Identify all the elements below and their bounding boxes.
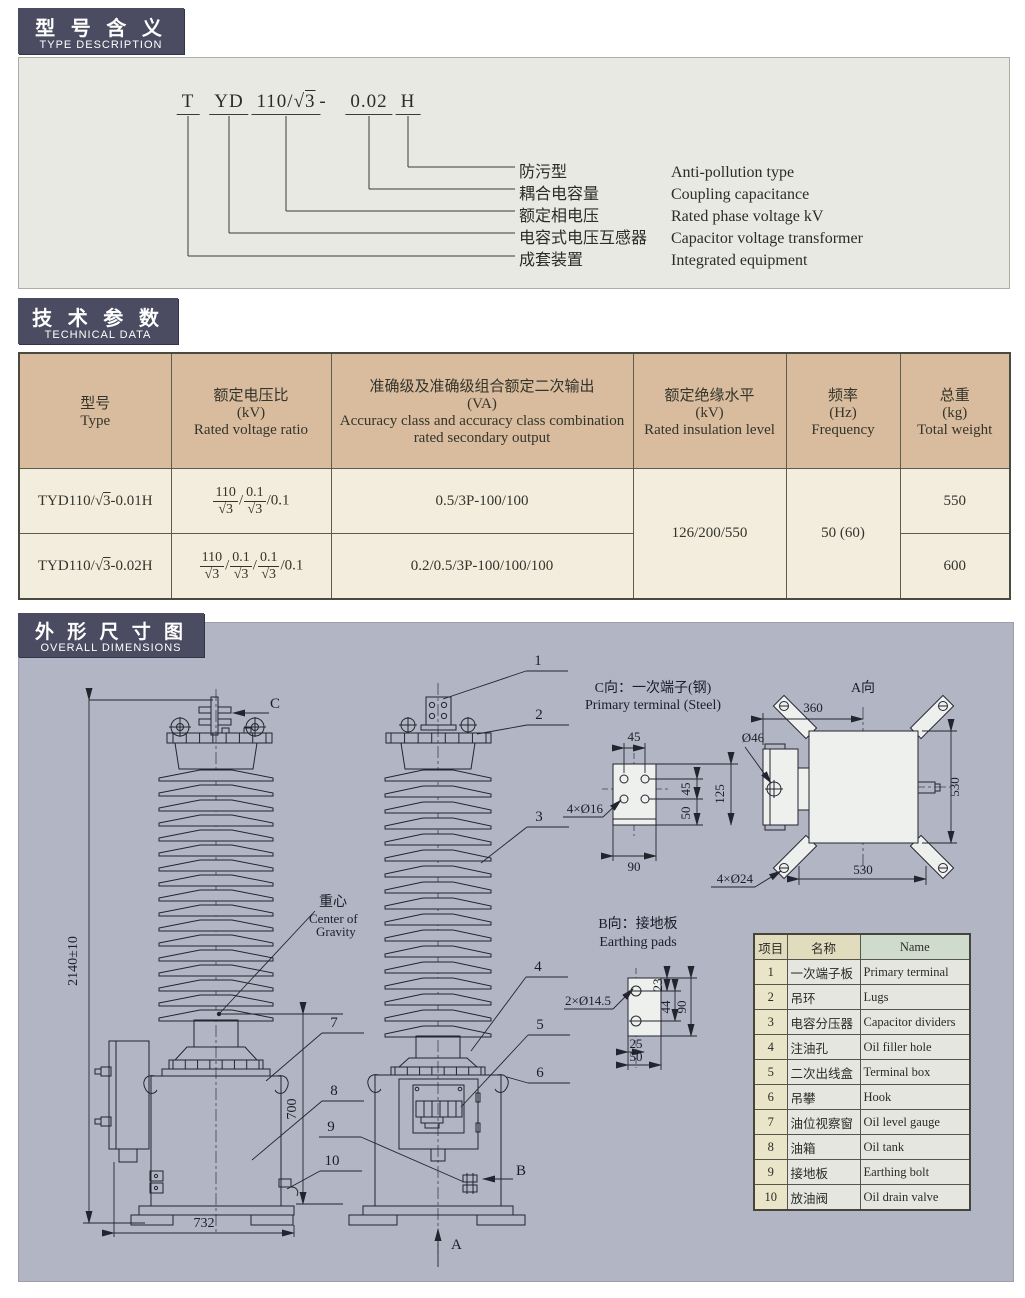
section-title-en: TYPE DESCRIPTION [18, 39, 184, 51]
header-total-weight: 总重 (kg) Total weight [900, 353, 1010, 469]
table-row: TYD110/√3-0.01H 110√3/0.1√3/0.1 0.5/3P-1… [19, 469, 1010, 534]
cell-type: TYD110/√3-0.01H [19, 469, 171, 534]
part-number: 3 [754, 1010, 787, 1035]
cell-insulation: 126/200/550 [633, 469, 786, 600]
page: { "sections": { "type_desc": {"title_zh"… [0, 0, 1025, 1298]
meaning-zh: 成套装置 [519, 246, 671, 270]
part-name-en: Terminal box [860, 1060, 970, 1085]
center-of-gravity-label-zh: 重心 [319, 894, 347, 910]
part-name-zh: 电容分压器 [787, 1010, 860, 1035]
dim-b-23: 23 [650, 979, 665, 992]
parts-row: 9接地板Earthing bolt [754, 1160, 970, 1185]
part-number: 7 [754, 1110, 787, 1135]
b-view-title-en: Earthing pads [599, 935, 676, 950]
dim-b-90: 90 [674, 1001, 689, 1014]
dim-c-45: 45 [628, 729, 641, 744]
part-name-zh: 一次端子板 [787, 960, 860, 985]
dim-c-v50: 50 [678, 807, 693, 820]
view-arrow-a: A [451, 1237, 462, 1253]
part-name-zh: 油位视察窗 [787, 1110, 860, 1135]
dim-a-boss: Ø46 [742, 730, 765, 745]
voltage-fraction: 110√3 [213, 485, 237, 517]
header-type: 型号 Type [19, 353, 171, 469]
b-view-earthing-pads-detail: B向：接地板 Earthing pads 2×Ø14.5 23 44 90 25… [564, 915, 697, 1070]
callout-10: 10 [325, 1153, 340, 1169]
cell-weight: 550 [900, 469, 1010, 534]
parts-row: 8油箱Oil tank [754, 1135, 970, 1160]
technical-data-table: 型号 Type 额定电压比 (kV) Rated voltage ratio 准… [18, 352, 1011, 600]
porcelain-insulator-stack [159, 770, 273, 1021]
meaning-zh: 额定相电压 [519, 202, 671, 226]
part-number: 8 [754, 1135, 787, 1160]
parts-header-no: 项目 [754, 934, 787, 960]
dim-a-360: 360 [803, 700, 823, 715]
section-header-type-description: 型 号 含 义 TYPE DESCRIPTION [18, 8, 184, 54]
part-number: 1 [754, 960, 787, 985]
callout-3: 3 [535, 809, 543, 825]
type-code-token: YD [209, 91, 248, 115]
header-insulation-level: 额定绝缘水平 (kV) Rated insulation level [633, 353, 786, 469]
part-name-zh: 吊攀 [787, 1085, 860, 1110]
parts-list-table: 项目 名称 Name 1一次端子板Primary terminal2吊环Lugs… [753, 933, 971, 1211]
type-code-meaning-row: 防污型Anti-pollution type [519, 158, 794, 182]
part-number: 4 [754, 1035, 787, 1060]
part-name-zh: 油箱 [787, 1135, 860, 1160]
parts-row: 7油位视察窗Oil level gauge [754, 1110, 970, 1135]
part-name-zh: 二次出线盒 [787, 1060, 860, 1085]
section-title-zh: 外 形 尺 寸 图 [18, 617, 204, 644]
parts-row: 2吊环Lugs [754, 985, 970, 1010]
type-code-token: H [396, 91, 421, 115]
part-number: 5 [754, 1060, 787, 1085]
primary-terminal [426, 697, 451, 725]
type-code-token: T [177, 91, 200, 115]
dim-b-50: 50 [630, 1049, 643, 1064]
dim-overall-height: 2140±10 [66, 936, 81, 986]
dim-c-90: 90 [628, 859, 641, 874]
cell-type: TYD110/√3-0.02H [19, 534, 171, 600]
part-number: 2 [754, 985, 787, 1010]
type-code-token: - [314, 91, 331, 114]
view-arrow-b: B [516, 1163, 526, 1179]
view-arrow-c: C [270, 696, 280, 712]
terminal-box-door [399, 1079, 480, 1149]
dim-c-v45: 45 [678, 783, 693, 796]
dim-base-width: 732 [194, 1216, 215, 1231]
callout-2: 2 [535, 707, 543, 723]
part-name-en: Oil filler hole [860, 1035, 970, 1060]
section-header-overall-dimensions: 外 形 尺 寸 图 OVERALL DIMENSIONS [18, 613, 204, 657]
dim-c-v125: 125 [712, 784, 727, 804]
cell-frequency: 50 (60) [786, 469, 900, 600]
parts-row: 6吊攀Hook [754, 1085, 970, 1110]
part-name-en: Oil level gauge [860, 1110, 970, 1135]
cell-ratio: 110√3/0.1√3/0.1 [171, 469, 331, 534]
dim-b-holes: 2×Ø14.5 [565, 993, 611, 1008]
part-name-en: Hook [860, 1085, 970, 1110]
parts-header-row: 项目 名称 Name [754, 934, 970, 960]
dim-a-holes: 4×Ø24 [717, 871, 754, 886]
callout-6: 6 [536, 1065, 544, 1081]
part-name-en: Lugs [860, 985, 970, 1010]
callout-9: 9 [327, 1119, 335, 1135]
section-header-technical-data: 技 术 参 数 TECHNICAL DATA [18, 298, 178, 344]
voltage-fraction: 0.1√3 [244, 485, 266, 517]
c-view-title-en: Primary terminal (Steel) [585, 698, 721, 713]
part-number: 10 [754, 1185, 787, 1211]
callout-1: 1 [534, 653, 542, 669]
section-title-en: OVERALL DIMENSIONS [18, 642, 204, 654]
part-name-en: Earthing bolt [860, 1160, 970, 1185]
parts-row: 4注油孔Oil filler hole [754, 1035, 970, 1060]
meaning-zh: 电容式电压互感器 [519, 224, 671, 248]
section-title-zh: 型 号 含 义 [18, 12, 184, 41]
porcelain-insulator-stack [385, 770, 491, 1037]
voltage-fraction: 0.1√3 [230, 550, 252, 582]
callout-5: 5 [536, 1017, 544, 1033]
secondary-terminal-box-side [95, 1041, 149, 1162]
parts-header-en: Name [860, 934, 970, 960]
a-view-base-detail: A向 360 530 530 4×Ø24 [711, 680, 962, 887]
callout-7: 7 [330, 1015, 338, 1031]
callout-4: 4 [534, 959, 542, 975]
left-elevation-view: C [66, 689, 464, 1237]
part-number: 6 [754, 1085, 787, 1110]
part-name-zh: 吊环 [787, 985, 860, 1010]
table-header-row: 型号 Type 额定电压比 (kV) Rated voltage ratio 准… [19, 353, 1010, 469]
b-view-title-zh: B向：接地板 [598, 915, 677, 932]
parts-row: 1一次端子板Primary terminal [754, 960, 970, 985]
cell-output: 0.5/3P-100/100 [331, 469, 633, 534]
c-view-primary-terminal-detail: C向：一次端子(钢) Primary terminal (Steel) 45 9… [563, 680, 738, 874]
type-code-token: 110/√3 [251, 91, 320, 115]
dim-b-44: 44 [658, 1000, 673, 1014]
dim-a-530-right: 530 [947, 777, 962, 797]
earthing-bolts [463, 1173, 477, 1194]
dim-tank-height: 700 [285, 1099, 300, 1120]
a-view-title: A向 [851, 680, 875, 696]
header-rated-voltage-ratio: 额定电压比 (kV) Rated voltage ratio [171, 353, 331, 469]
cell-weight: 600 [900, 534, 1010, 600]
type-code-meaning-row: 额定相电压Rated phase voltage kV [519, 202, 823, 226]
parts-row: 10放油阀Oil drain valve [754, 1185, 970, 1211]
type-code-meaning-row: 成套装置Integrated equipment [519, 246, 807, 270]
dim-c-holes: 4×Ø16 [567, 801, 604, 816]
part-name-en: Oil drain valve [860, 1185, 970, 1211]
type-description-panel: TYD110/√3-0.02H 防污型Anti-pollution type耦合… [18, 57, 1010, 289]
type-code-token: 0.02 [345, 91, 392, 115]
type-code-meaning-row: 耦合电容量Coupling capacitance [519, 180, 809, 204]
meaning-zh: 防污型 [519, 158, 671, 182]
cell-output: 0.2/0.5/3P-100/100/100 [331, 534, 633, 600]
center-of-gravity-label-en: Gravity [316, 924, 356, 939]
part-name-en: Primary terminal [860, 960, 970, 985]
section-title-zh: 技 术 参 数 [18, 302, 178, 331]
middle-elevation-view: A B 1 2 3 4 5 6 [349, 653, 570, 1267]
header-accuracy-output: 准确级及准确级组合额定二次输出 (VA) Accuracy class and … [331, 353, 633, 469]
meaning-zh: 耦合电容量 [519, 180, 671, 204]
callout-8: 8 [330, 1083, 338, 1099]
part-name-zh: 注油孔 [787, 1035, 860, 1060]
part-name-en: Capacitor dividers [860, 1010, 970, 1035]
c-view-title-zh: C向：一次端子(钢) [595, 680, 712, 696]
part-name-zh: 放油阀 [787, 1185, 860, 1211]
part-number: 9 [754, 1160, 787, 1185]
type-code-connector-lines [19, 58, 1009, 288]
parts-row: 5二次出线盒Terminal box [754, 1060, 970, 1085]
voltage-fraction: 0.1√3 [258, 550, 280, 582]
part-name-en: Oil tank [860, 1135, 970, 1160]
parts-header-zh: 名称 [787, 934, 860, 960]
meaning-en: Integrated equipment [671, 252, 807, 270]
voltage-fraction: 110√3 [200, 550, 224, 582]
part-name-zh: 接地板 [787, 1160, 860, 1185]
header-frequency: 频率 (Hz) Frequency [786, 353, 900, 469]
type-code-meaning-row: 电容式电压互感器Capacitor voltage transformer [519, 224, 863, 248]
cell-ratio: 110√3/0.1√3/0.1√3/0.1 [171, 534, 331, 600]
dim-a-530-bottom: 530 [853, 862, 873, 877]
parts-row: 3电容分压器Capacitor dividers [754, 1010, 970, 1035]
